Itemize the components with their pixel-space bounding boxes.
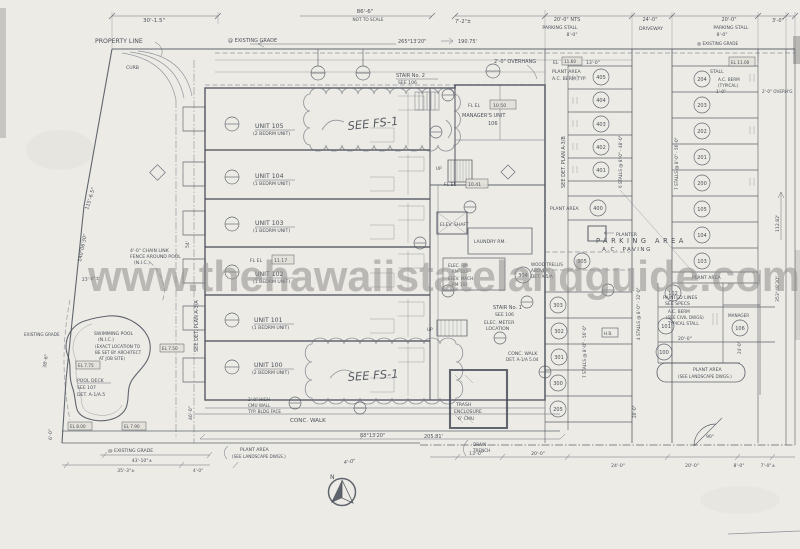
plant-island-2: (SEE LANDSCAPE DWGS.) xyxy=(678,374,732,379)
dim-54: 54' xyxy=(185,241,191,248)
manager-stall-label: MANAGER xyxy=(728,313,749,318)
berm-civil-3: TYPICAL STALL xyxy=(667,321,699,326)
stall-word: STALL xyxy=(710,69,724,75)
plant-area-top-2: A.C. BERM TYP xyxy=(552,76,586,82)
dim-35-3: 35'-3"± xyxy=(117,468,135,474)
plant-area-mid: PLANT AREA xyxy=(550,206,580,212)
pool-label-3: (EXACT LOCATION TO xyxy=(95,344,141,349)
stair1-label: STAIR No. 1 xyxy=(493,305,522,311)
stall-100: 100 xyxy=(659,350,669,356)
elev-shaft-label: ELEV. SHAFT xyxy=(440,222,469,228)
ac-berm-typ-3: 1'-0" xyxy=(716,89,726,94)
painted-lines-2: SEE SPECS xyxy=(665,301,690,307)
pool-label-5: AT JOB SITE) xyxy=(99,356,125,361)
see-det-plan-a3b: SEE DET. PLAN A-3/B xyxy=(561,136,567,188)
stall-404: 404 xyxy=(596,98,606,104)
vdim-7-stalls: 7 STALLS @ 8'-0" - 56'-0" xyxy=(674,137,679,190)
trash-label-3: 6' CMU xyxy=(458,416,474,422)
pool-deck-3: DET. A-1/A.5 xyxy=(77,392,105,398)
el-box-b-value: EL 11.00 xyxy=(731,60,750,65)
pool-label-1: SWIMMING POOL xyxy=(94,331,134,337)
cmu-wall-2: CMU WALL xyxy=(248,403,271,408)
scanned-site-plan-sheet: 30'-1.5" 86'-6" NOT TO SCALE 265°13'20" … xyxy=(0,0,800,549)
stall-205: 205 xyxy=(553,407,563,413)
unit-104-type: (1 BEDRM UNIT) xyxy=(253,181,290,187)
stall-302: 302 xyxy=(554,329,564,335)
dim-20-bottom: 20'-0" xyxy=(531,451,545,457)
curb-label: CURB xyxy=(126,65,139,71)
dim-20-bottom-2: 20'-0" xyxy=(685,463,699,469)
vdim-6-stalls: 6 STALLS @ 8'-0" - 48'-0" xyxy=(618,135,623,188)
trash-label-1: TRASH xyxy=(455,402,471,408)
stall-301: 301 xyxy=(554,355,564,361)
driveway-label: DRIVEWAY xyxy=(639,26,663,32)
stall-201: 201 xyxy=(697,155,707,161)
unit-104-label: UNIT 104 xyxy=(255,173,284,180)
stair1-ref: SEE 106 xyxy=(495,312,514,318)
vdim-7-stalls-b: 7 STALLS @ 8'-0" - 56'-0" xyxy=(582,325,587,378)
pool-deck-2: SEE 107 xyxy=(77,385,96,391)
stall-303: 303 xyxy=(553,303,563,309)
unit-100-label: UNIT 100 xyxy=(254,362,283,369)
managers-unit-number: 106 xyxy=(488,121,498,127)
up-label-2: UP xyxy=(427,327,433,332)
el-box-a-value: 11.60 xyxy=(564,59,576,64)
dim-20-nts: 20'-0" NTS xyxy=(554,17,581,23)
unit-101-type: (1 BEDRM UNIT) xyxy=(252,325,289,331)
stall-202: 202 xyxy=(697,129,707,135)
unit-101-label: UNIT 101 xyxy=(254,317,283,324)
ac-berm-typ-2: (TYPICAL) xyxy=(718,83,739,88)
el-750: EL 7.50 xyxy=(162,346,178,351)
vdim-24: 24'-0" xyxy=(737,341,742,354)
plant-area-top-1: PLANT AREA xyxy=(552,69,582,75)
stall-204: 204 xyxy=(697,77,707,83)
unit-105-label: UNIT 105 xyxy=(255,123,284,130)
el-775: EL 7.75 xyxy=(78,363,94,368)
hose-bib-label: H.B. xyxy=(604,331,613,336)
berm-civil-2: (SEE CIVIL DWGS) xyxy=(666,315,704,320)
dim-8-bottom: 8'-0" xyxy=(734,463,745,469)
plant-island-1: PLANT AREA xyxy=(693,367,723,373)
cmu-wall-3: TYP. BLDG FACE xyxy=(247,409,281,414)
north-label: N xyxy=(330,474,335,481)
pool-label-2: (N.I.C.) xyxy=(98,337,114,343)
elec-meter-line2: LOCATION xyxy=(486,326,509,332)
unit-103-label: UNIT 103 xyxy=(255,220,284,227)
stall-400: 400 xyxy=(593,206,603,212)
length-top: 190.75' xyxy=(458,39,477,45)
overhang-note: 2'-0" OVERHANG xyxy=(494,59,536,65)
watermark-text: www.thehawaiistatelandguide.com xyxy=(87,252,800,301)
stall-401: 401 xyxy=(596,168,606,174)
dim-8ft-1: 8'-0" xyxy=(567,32,578,38)
elec-meter-line1: ELEC. METER xyxy=(484,320,515,326)
parking-stall-label-2: PARKING STALL xyxy=(713,25,749,31)
dim-30ft: 30'-1.5" xyxy=(143,18,166,24)
up-label-1: UP xyxy=(436,166,442,171)
dim-46ft: 46'-0" xyxy=(188,406,194,420)
conc-walk-label: CONC. WALK xyxy=(290,418,326,424)
dim-3ft: 3'-0" xyxy=(772,18,784,24)
stall-403: 403 xyxy=(596,122,606,128)
stall-104: 104 xyxy=(697,233,707,239)
angle-90: 90° xyxy=(706,434,714,440)
dim-8ft-2: 8'-0" xyxy=(717,32,728,38)
drain-label-1: DRAIN xyxy=(473,442,486,447)
stair2-ref: SEE 106 xyxy=(398,80,417,86)
see-det-plan-a3a: SEE DET. PLAN A-3/A xyxy=(194,300,200,352)
parking-stall-label-1: PARKING STALL xyxy=(542,25,578,31)
stall-300: 300 xyxy=(553,381,563,387)
dim-86ft: 86'-6" xyxy=(357,9,374,15)
plant-area-bottom-1: PLANT AREA xyxy=(240,447,270,453)
stall-manager-106: 106 xyxy=(735,326,745,332)
conc-walk-det: DET. A-1/A 5.04 xyxy=(506,357,539,362)
dim-4-0: 4'-0" xyxy=(193,468,203,473)
dim-24-bottom: 24'-0" xyxy=(611,463,625,469)
stall-405: 405 xyxy=(596,75,606,81)
dim-20ft-r: 20'-0" xyxy=(721,17,736,23)
dim-6ft: 6'-0" xyxy=(48,429,54,440)
stall-203: 203 xyxy=(697,103,707,109)
stall-105: 105 xyxy=(697,207,707,213)
dim-24ft: 24'-0" xyxy=(642,17,657,23)
pool-label-4: BE SET BY ARCHITECT xyxy=(95,350,142,355)
unit-103-type: (1 BEDRM UNIT) xyxy=(253,228,290,234)
dim-43-10: 43'-10"± xyxy=(132,458,153,464)
laundry-label: LAUNDRY RM. xyxy=(474,239,506,245)
el-790: EL 7.90 xyxy=(124,424,140,429)
property-line-label: PROPERTY LINE xyxy=(95,38,143,45)
dim-7-bottom: 7'-0"± xyxy=(761,463,776,469)
mgr-fl-el-value: 10.50 xyxy=(493,103,506,109)
stall-200: 200 xyxy=(697,181,707,187)
existing-grade-top: @ EXISTING GRADE xyxy=(228,38,277,44)
unit-100-type: (2 BEDRM UNIT) xyxy=(252,370,289,376)
trash-label-2: ENCLOSURE xyxy=(454,409,482,415)
site-plan-drawing: 30'-1.5" 86'-6" NOT TO SCALE 265°13'20" … xyxy=(0,0,800,549)
dim-20-stall: 20'-0" xyxy=(678,336,692,342)
stair2-label: STAIR No. 2 xyxy=(396,73,425,79)
bearing-top: 265°13'20" xyxy=(398,39,426,45)
managers-unit-label: MANAGER'S UNIT xyxy=(462,113,506,119)
stall-402: 402 xyxy=(596,145,606,151)
dim-7-2: 7'-2"± xyxy=(455,19,471,25)
mgr-fl-el-label: FL EL xyxy=(468,103,481,109)
vdim-20: 20'-0" xyxy=(632,405,637,418)
plant-area-bottom-2: (SEE LANDSCAPE DWGS.) xyxy=(232,454,286,459)
existing-grade-bottom: @ EXISTING GRADE xyxy=(108,448,153,454)
existing-grade-left: EXISTING GRADE xyxy=(24,332,60,337)
planter-label: PLANTER xyxy=(616,232,638,238)
length-bottom: 205.81' xyxy=(424,434,443,440)
dim-13ft-top: 13'-0" xyxy=(586,60,600,66)
bearing-bottom: 83°13'20" xyxy=(360,433,385,439)
note-not-to-scale: NOT TO SCALE xyxy=(353,17,384,22)
dim-13-bottom: 13'-0" xyxy=(469,451,483,457)
fl-el-core-value: 10.41 xyxy=(468,182,481,188)
overhang-right: 2'-0" OVERH'G xyxy=(762,89,792,94)
unit-105-type: (2 BEDRM UNIT) xyxy=(253,131,290,137)
el-box-a-label: EL xyxy=(553,60,559,66)
el-800: EL 8.00 xyxy=(70,424,86,429)
cmu-wall-1: 2'-0" HIGH xyxy=(248,397,270,402)
existing-grade-stall: @ EXISTING GRADE xyxy=(697,41,739,46)
length-right: 112.82' xyxy=(775,215,781,232)
berm-civil-1: A.C. BERM xyxy=(668,309,690,314)
fl-el-core-label: FL EL xyxy=(444,182,457,188)
parking-area-label: PARKING AREA xyxy=(596,237,687,245)
ac-berm-typ-1: A.C. BERM xyxy=(718,77,740,82)
